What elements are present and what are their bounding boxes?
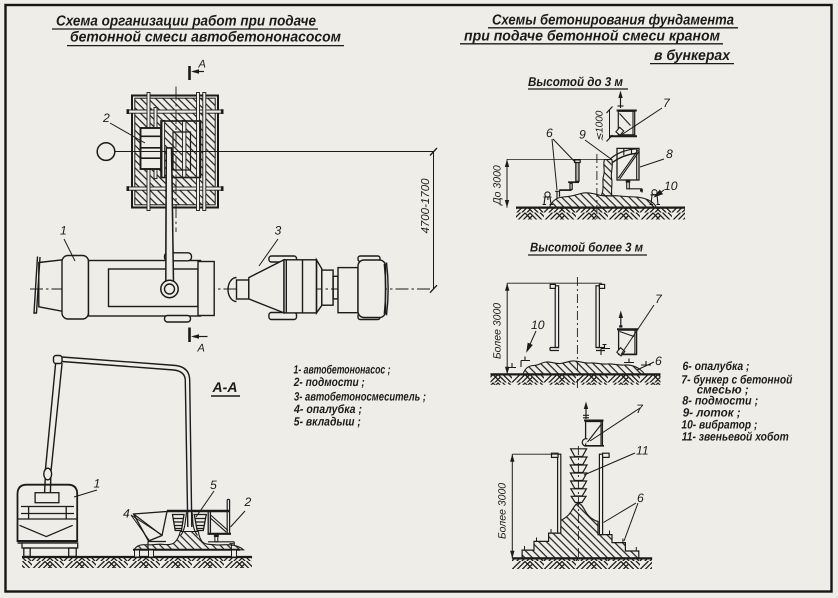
svg-text:≲1000: ≲1000	[595, 110, 606, 141]
svg-text:Высотой более 3 м: Высотой более 3 м	[530, 240, 643, 255]
svg-text:10: 10	[664, 179, 678, 193]
svg-text:5: 5	[210, 478, 217, 492]
svg-text:4: 4	[123, 507, 130, 521]
svg-text:8: 8	[666, 147, 673, 161]
svg-text:2- подмости ;: 2- подмости ;	[293, 375, 365, 389]
svg-text:3: 3	[275, 224, 282, 238]
svg-text:6- опалубка ;: 6- опалубка ;	[683, 359, 750, 373]
svg-text:2: 2	[244, 495, 252, 509]
svg-text:6: 6	[655, 354, 662, 368]
svg-text:9: 9	[579, 128, 586, 142]
svg-text:4700-1700: 4700-1700	[420, 178, 432, 234]
svg-text:Схемы бетонирования фундамента: Схемы бетонирования фундамента	[492, 13, 734, 29]
svg-text:в бункерах: в бункерах	[654, 48, 731, 64]
svg-text:A: A	[198, 59, 206, 71]
svg-text:11- звеньевой хобот: 11- звеньевой хобот	[682, 430, 789, 444]
svg-text:6: 6	[637, 491, 644, 505]
svg-text:1: 1	[60, 224, 67, 238]
svg-text:Высотой до 3 м: Высотой до 3 м	[528, 74, 623, 89]
svg-text:6: 6	[546, 126, 553, 140]
svg-text:11: 11	[636, 444, 649, 458]
svg-text:10: 10	[531, 318, 545, 332]
svg-text:1: 1	[94, 477, 101, 491]
svg-text:бетонной смеси автобетононасос: бетонной смеси автобетононасосом	[70, 30, 341, 46]
svg-text:5- вкладыш ;: 5- вкладыш ;	[294, 415, 361, 429]
svg-text:2: 2	[102, 111, 110, 125]
svg-text:До 3000: До 3000	[492, 165, 504, 206]
svg-text:Более 3000: Более 3000	[497, 483, 509, 539]
svg-text:Более 3000: Более 3000	[492, 303, 504, 359]
svg-text:Схема организации работ при по: Схема организации работ при подаче	[56, 14, 316, 30]
svg-text:при подаче бетонной смеси кран: при подаче бетонной смеси краном	[464, 29, 720, 45]
svg-text:A: A	[197, 343, 205, 355]
svg-text:А-А: А-А	[212, 379, 238, 395]
